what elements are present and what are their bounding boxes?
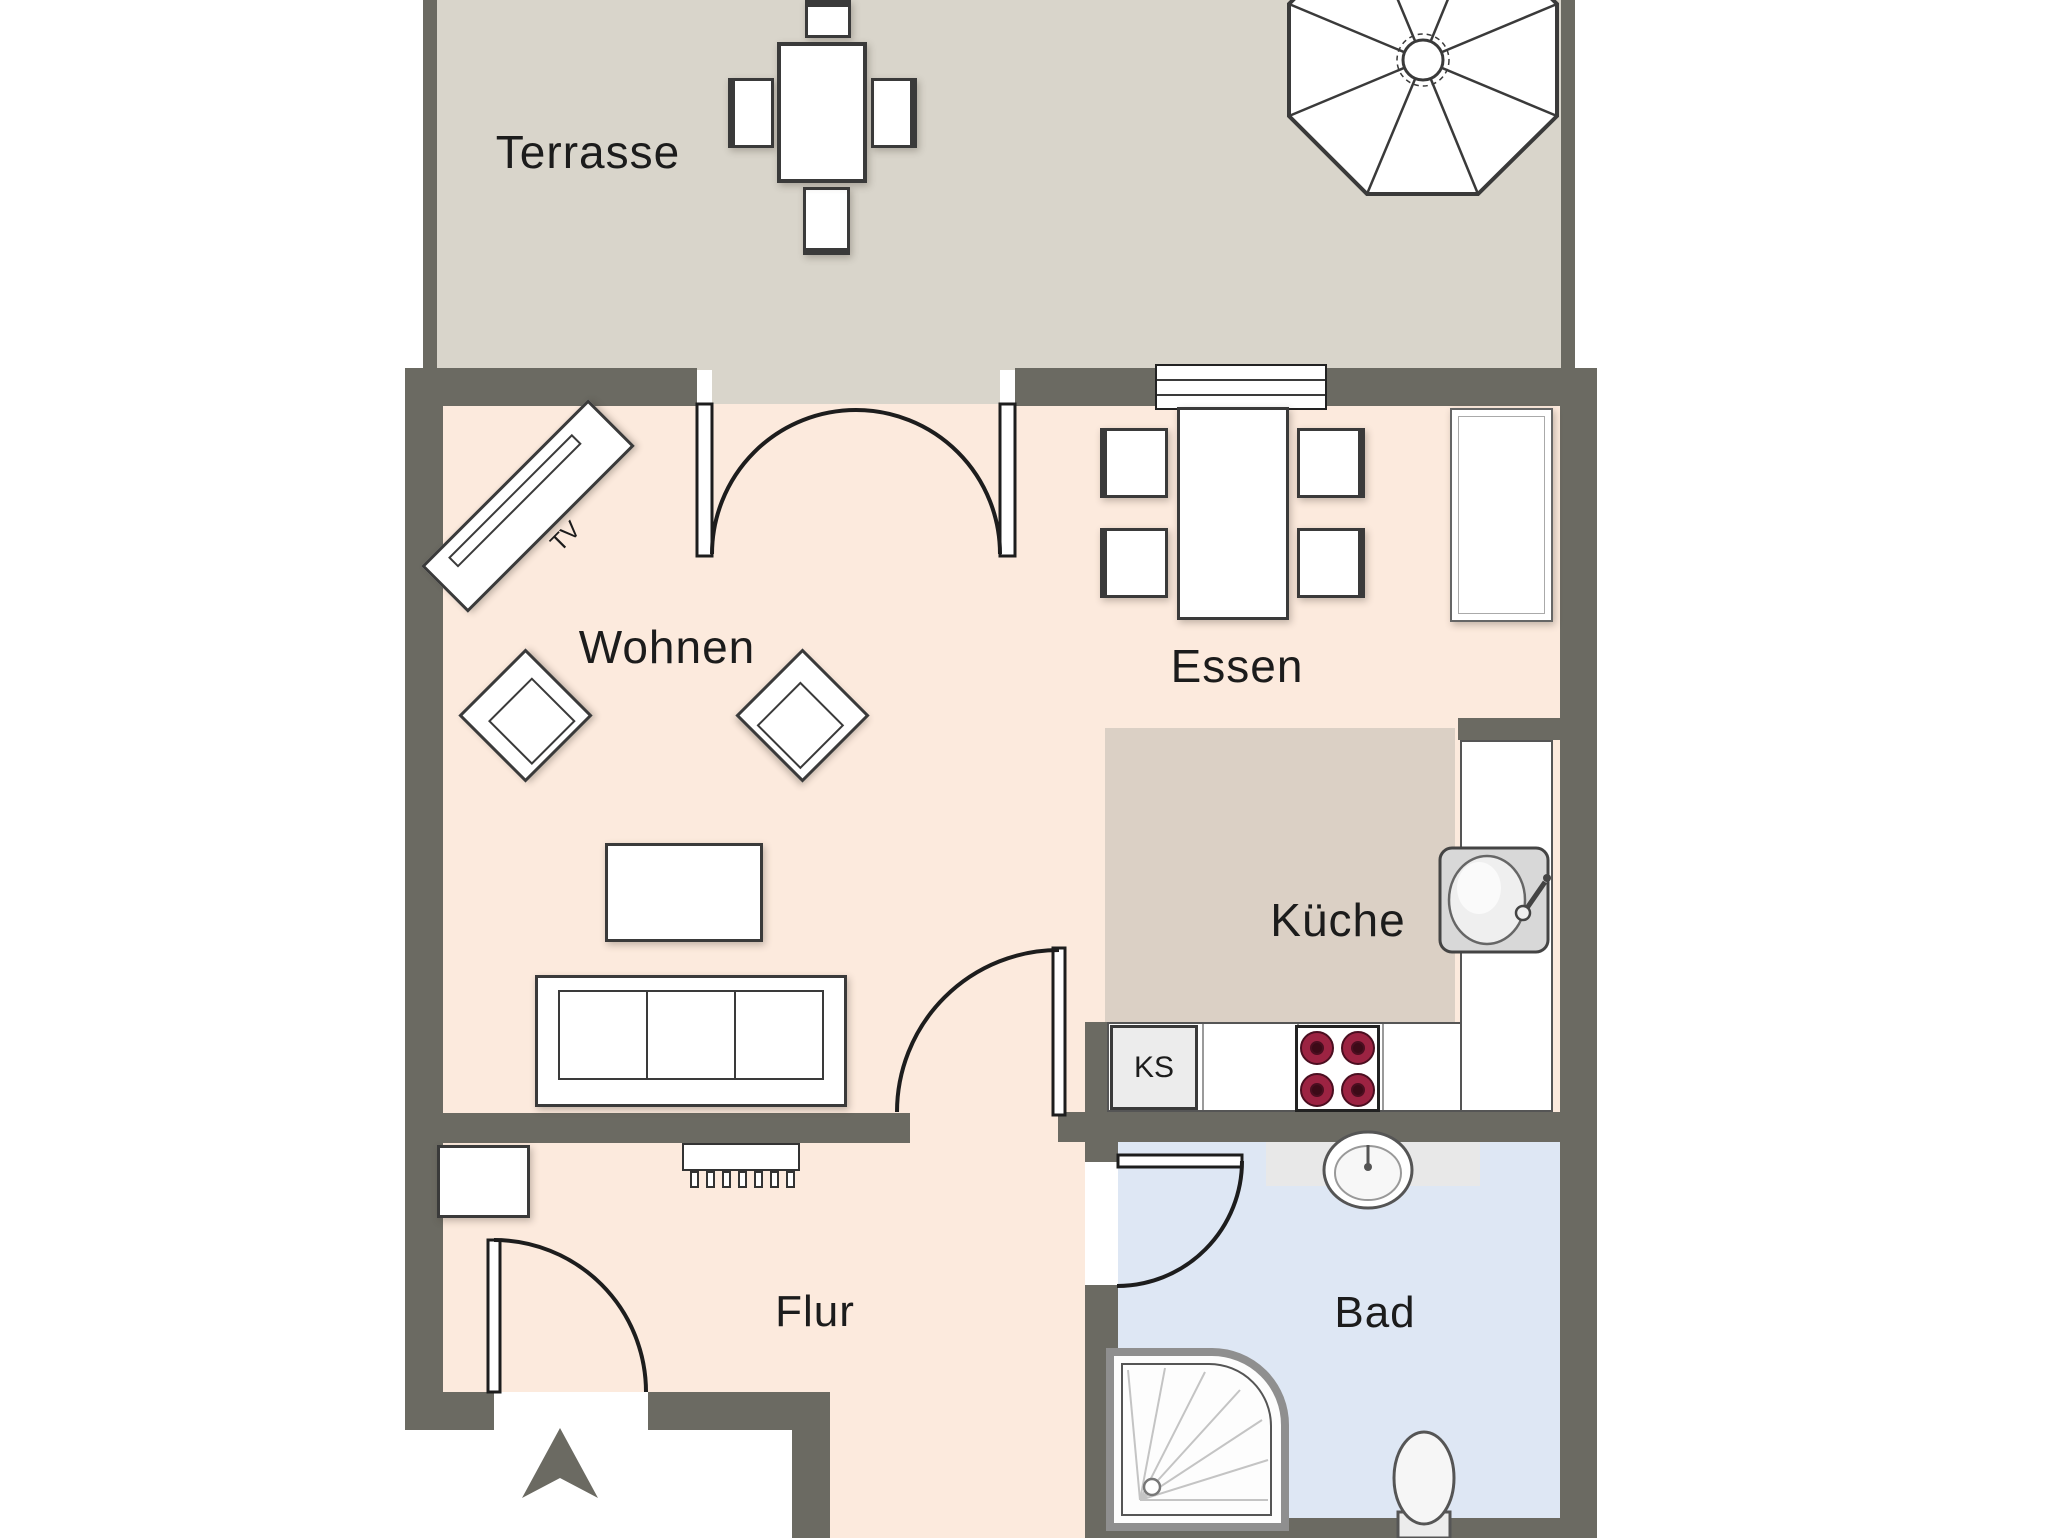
room-label-bad: Bad [1334,1288,1415,1338]
dining-chair-4 [1297,528,1365,598]
radiator-fin [706,1171,715,1188]
ks-label: KS [1134,1051,1174,1085]
kitchen-floor [1105,728,1455,1022]
terrace-left-wall [423,0,437,370]
dining-chair-1 [1100,428,1168,498]
coffee-table [605,843,763,942]
essen-kueche-stub [1458,718,1560,740]
room-label-essen: Essen [1171,639,1304,693]
room-label-terrasse: Terrasse [496,125,680,179]
floor-plan: TV KS [0,0,2048,1538]
radiator-fin [738,1171,747,1188]
terrace-floor [437,0,1561,370]
dining-chair-2 [1100,528,1168,598]
terrace-chair-bottom [803,187,850,255]
sofa-seat [558,990,824,1080]
terrace-table [777,42,867,183]
flur-bad-wall-lower [1085,1285,1118,1538]
radiator-fin [754,1171,763,1188]
wardrobe [437,1145,530,1218]
kitchen-counter-right [1460,740,1553,1112]
window [1155,364,1327,410]
left-wall [405,368,443,1430]
hall-bottom-wall-b [648,1392,830,1430]
radiator [682,1143,800,1171]
hall-floor-lower [830,1392,1085,1538]
room-label-kueche: Küche [1270,893,1405,947]
sofa [535,975,847,1107]
room-label-flur: Flur [775,1287,855,1337]
terrace-right-wall [1561,0,1575,370]
living-bottom-wall [405,1113,910,1143]
dining-chair-3 [1297,428,1365,498]
bath-bottom-wall [1118,1518,1597,1538]
terrace-door-threshold [712,368,1000,404]
stove [1295,1025,1380,1112]
kitchen-bottom-wall [1058,1112,1560,1142]
dining-table [1177,407,1289,620]
terrace-chair-right [871,78,917,148]
hall-corner-wall [792,1430,830,1538]
flur-bad-wall-upper [1085,1142,1118,1162]
hall-bottom-wall-a [405,1392,494,1430]
terrace-chair-top [805,0,851,38]
bath-basin-counter [1266,1142,1480,1186]
top-wall-b [1015,368,1157,406]
right-wall [1560,368,1597,1538]
room-label-wohnen: Wohnen [579,620,756,674]
radiator-fin [722,1171,731,1188]
radiator-fin [690,1171,699,1188]
kitchen-counter-stub [1085,1022,1107,1112]
terrace-chair-left [728,78,774,148]
top-wall-c [1325,368,1560,406]
top-wall-a [405,368,697,406]
radiator-fin [770,1171,779,1188]
radiator-fin [786,1171,795,1188]
entrance-arrow-icon [522,1428,598,1498]
tall-cabinet [1450,408,1553,622]
